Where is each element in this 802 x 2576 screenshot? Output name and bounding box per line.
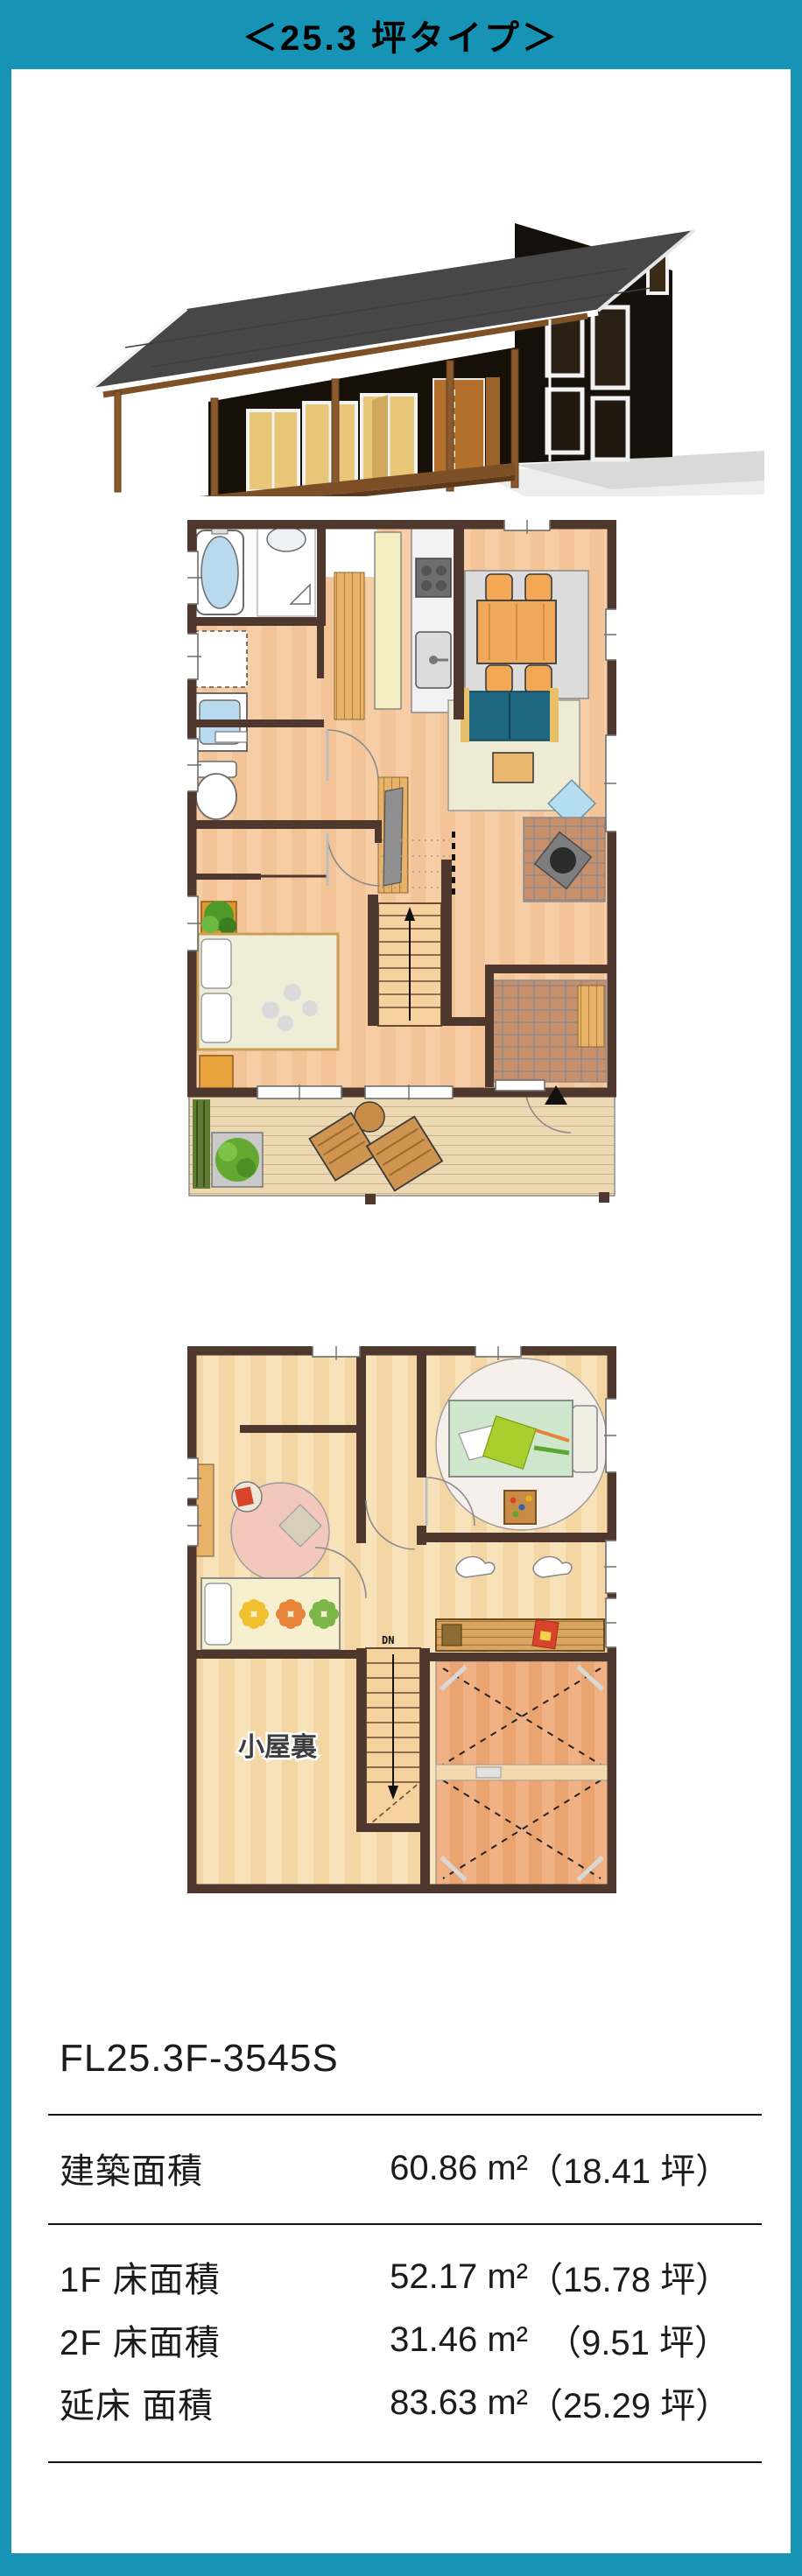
house-render xyxy=(38,85,764,496)
night-stand xyxy=(200,1056,233,1092)
kitchen-island xyxy=(375,532,401,709)
spec-sqm: 60.86 m² xyxy=(261,2149,528,2188)
floor-plan-2f: 小屋裏 DN xyxy=(187,1346,616,1893)
spec-tsubo: （15.78 坪） xyxy=(528,2251,729,2302)
spec-label: 1F 床面積 xyxy=(60,2251,261,2302)
washing-machine xyxy=(194,631,247,687)
hall-shelf xyxy=(378,777,408,893)
side-window-lower-left xyxy=(547,390,582,453)
spec-row-building-area: 建築面積 60.86 m² （18.41 坪） xyxy=(60,2137,729,2200)
stairs-down-label: DN xyxy=(382,1634,394,1646)
pillow-1 xyxy=(201,939,231,988)
living-area xyxy=(448,688,595,827)
pantry-shelf xyxy=(334,572,364,719)
stove xyxy=(416,558,451,597)
entrance-door-leaf xyxy=(496,1080,545,1091)
spec-row-total-area: 延床 面積 83.63 m² （25.29 坪） xyxy=(60,2371,729,2434)
closet xyxy=(324,524,376,577)
spec-sqm: 52.17 m² xyxy=(261,2257,528,2297)
dining-set xyxy=(465,571,588,698)
side-window-lower-right xyxy=(593,398,628,460)
side-window-upper-right xyxy=(593,307,628,388)
content-panel: 小屋裏 DN xyxy=(11,69,791,2553)
attic-room: 小屋裏 xyxy=(238,1732,318,1762)
pillow-2 xyxy=(201,993,231,1042)
shower-room xyxy=(257,527,315,616)
divider-2 xyxy=(48,2223,762,2225)
stairs-2f: DN xyxy=(366,1634,420,1828)
kids-bed-left xyxy=(201,1578,340,1650)
spec-label: 建築面積 xyxy=(60,2143,261,2193)
divider-3 xyxy=(48,2461,762,2463)
spec-label: 延床 面積 xyxy=(60,2377,261,2428)
entrance xyxy=(490,980,606,1082)
page-title: ＜25.3 坪タイプ＞ xyxy=(0,0,802,69)
spec-label: 2F 床面積 xyxy=(60,2314,261,2365)
coffee-table xyxy=(493,753,533,783)
toy-box xyxy=(504,1491,536,1524)
spec-tsubo: （9.51 坪） xyxy=(528,2314,729,2365)
divider-1 xyxy=(48,2114,762,2116)
attic-label: 小屋裏 xyxy=(238,1732,318,1762)
model-number: FL25.3F-3545S xyxy=(60,2037,672,2081)
spec-sqm: 83.63 m² xyxy=(261,2383,528,2423)
spec-row-1f-area: 1F 床面積 52.17 m² （15.78 坪） xyxy=(60,2245,729,2308)
kids-bed-right xyxy=(449,1400,597,1477)
entrance-bench xyxy=(578,986,604,1047)
wood-stove-hearth xyxy=(524,818,605,902)
floor-plan-1f xyxy=(187,520,616,1211)
brochure-page: { "frame": { "title": "＜25.3 坪タイプ＞", "ac… xyxy=(0,0,802,2576)
spec-sqm: 31.46 m² xyxy=(261,2320,528,2360)
spec-row-2f-area: 2F 床面積 31.46 m² （9.51 坪） xyxy=(60,2308,729,2371)
void-open-to-below xyxy=(436,1661,608,1885)
spec-tsubo: （25.29 坪） xyxy=(528,2377,729,2428)
kids-room-right xyxy=(436,1358,608,1530)
entrance-door xyxy=(433,377,500,479)
sofa-arm-right xyxy=(550,688,559,742)
void-beam xyxy=(436,1765,608,1780)
bathtub xyxy=(196,527,243,614)
spec-tsubo: （18.41 坪） xyxy=(528,2143,729,2193)
